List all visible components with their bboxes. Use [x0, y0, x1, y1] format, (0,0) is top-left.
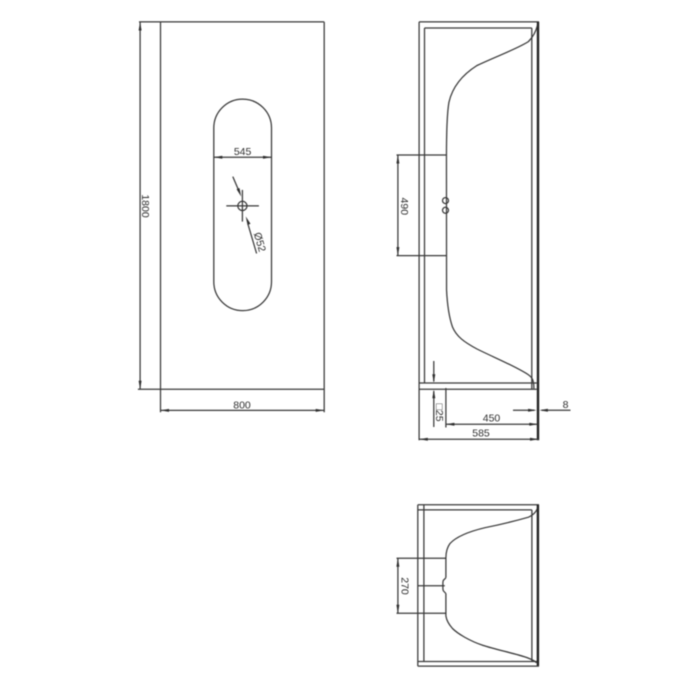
svg-text:450: 450: [483, 413, 501, 425]
svg-text:800: 800: [233, 399, 251, 411]
svg-text:Ø52: Ø52: [251, 231, 268, 254]
svg-text:□25: □25: [433, 404, 445, 422]
svg-text:545: 545: [234, 146, 252, 158]
svg-text:490: 490: [398, 198, 410, 216]
svg-text:1800: 1800: [139, 194, 151, 218]
svg-text:270: 270: [398, 577, 410, 595]
svg-text:8: 8: [563, 399, 569, 411]
svg-text:585: 585: [472, 427, 490, 439]
